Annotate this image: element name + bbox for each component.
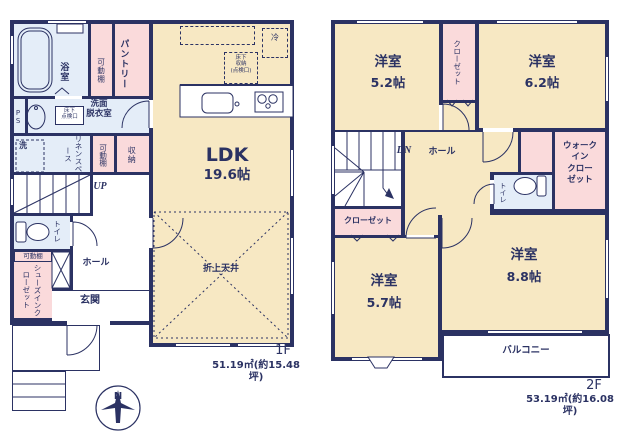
porch-step-lines: [13, 384, 65, 397]
f1-floor-label: 1F: [270, 344, 296, 359]
pantry-label: パントリー: [118, 33, 128, 95]
hall-2f-label: ホール: [424, 147, 460, 157]
toilet-2f-icon: [514, 176, 546, 196]
door-arc-room52: [443, 104, 469, 130]
shelf-linen-label: 可動棚: [98, 140, 107, 170]
room52-label: 洋室: [360, 55, 416, 71]
linen-label: リネンスペース: [61, 135, 83, 173]
kitchen-counter-icon: [180, 85, 293, 117]
ldk-label: LDK: [198, 145, 256, 167]
bath-counter-icon: [57, 24, 83, 33]
entrance-label: 玄関: [72, 295, 108, 307]
balcony-label: バルコニー: [488, 346, 564, 357]
shoes-closet-label: シューズインクローゼット: [17, 263, 43, 317]
stairs-down-label: DN: [392, 145, 416, 157]
shutter-box-mark: [368, 357, 394, 368]
stairs-down-icon: [335, 132, 401, 206]
washer-label: 洗: [16, 141, 30, 150]
door-arc-entrance: [67, 325, 97, 355]
room62-label: 洋室: [514, 55, 570, 71]
door-arc-ldk: [153, 218, 183, 248]
raised-ceiling-label: 折上天井: [186, 264, 256, 274]
hall-1f-label: ホール: [80, 258, 112, 268]
bathtub-icon: [18, 28, 52, 92]
underfloor-storage-label: 床下 収納 (点検口): [226, 55, 256, 74]
door-arc-toilet-1f: [73, 222, 97, 246]
washroom-label: 洗面 脱衣室: [80, 100, 118, 120]
shelf-shoes-label: 可動棚: [14, 253, 52, 260]
room52-size-label: 5.2帖: [358, 76, 418, 90]
stairs-up-label: UP: [88, 181, 112, 193]
toilet-2f-label: トイレ: [499, 177, 507, 207]
f1-area-label: 51.19㎡(約15.48坪): [206, 360, 306, 383]
shelf-bath-label: 可動棚: [96, 43, 105, 99]
toilet-1f-icon: [16, 222, 49, 242]
door-arc-toilet-2f: [474, 184, 494, 204]
closet-left-label: クローゼット: [339, 216, 397, 225]
bath-label: 浴室: [58, 45, 68, 99]
f2-fixtures-layer: [331, 20, 609, 375]
fridge-label: 冷: [266, 33, 284, 42]
door-arc-room88: [442, 218, 472, 248]
door-arc-room57: [406, 208, 436, 238]
ldk-size-label: 19.6帖: [196, 168, 258, 184]
toilet-1f-label: トイレ: [52, 216, 61, 247]
room57-label: 洋室: [356, 274, 412, 290]
vanity-icon: [27, 105, 45, 129]
closet-top-label: クローゼット: [452, 29, 461, 95]
door-arc-room62: [483, 132, 513, 162]
room88-label: 洋室: [496, 248, 552, 264]
room62-size-label: 6.2帖: [512, 76, 572, 90]
compass-north-label: N: [114, 391, 122, 402]
shoe-storage-icon: [52, 252, 70, 288]
stairs-up-icon: [14, 175, 90, 213]
door-arc-washroom: [122, 101, 149, 128]
f2-floor-label: 2F: [580, 379, 608, 394]
f2-area-label: 53.19㎡(約16.08坪): [520, 394, 620, 417]
walk-in-closet-label: ウォーク イン クロー ゼット: [556, 141, 604, 187]
floor-plan: N: [0, 0, 632, 435]
storage-label: 収納: [127, 142, 136, 168]
raised-ceiling-outline: [154, 212, 288, 338]
room57-size-label: 5.7帖: [354, 296, 414, 310]
room88-size-label: 8.8帖: [494, 270, 554, 284]
pipe-space-label: PS: [14, 105, 22, 129]
